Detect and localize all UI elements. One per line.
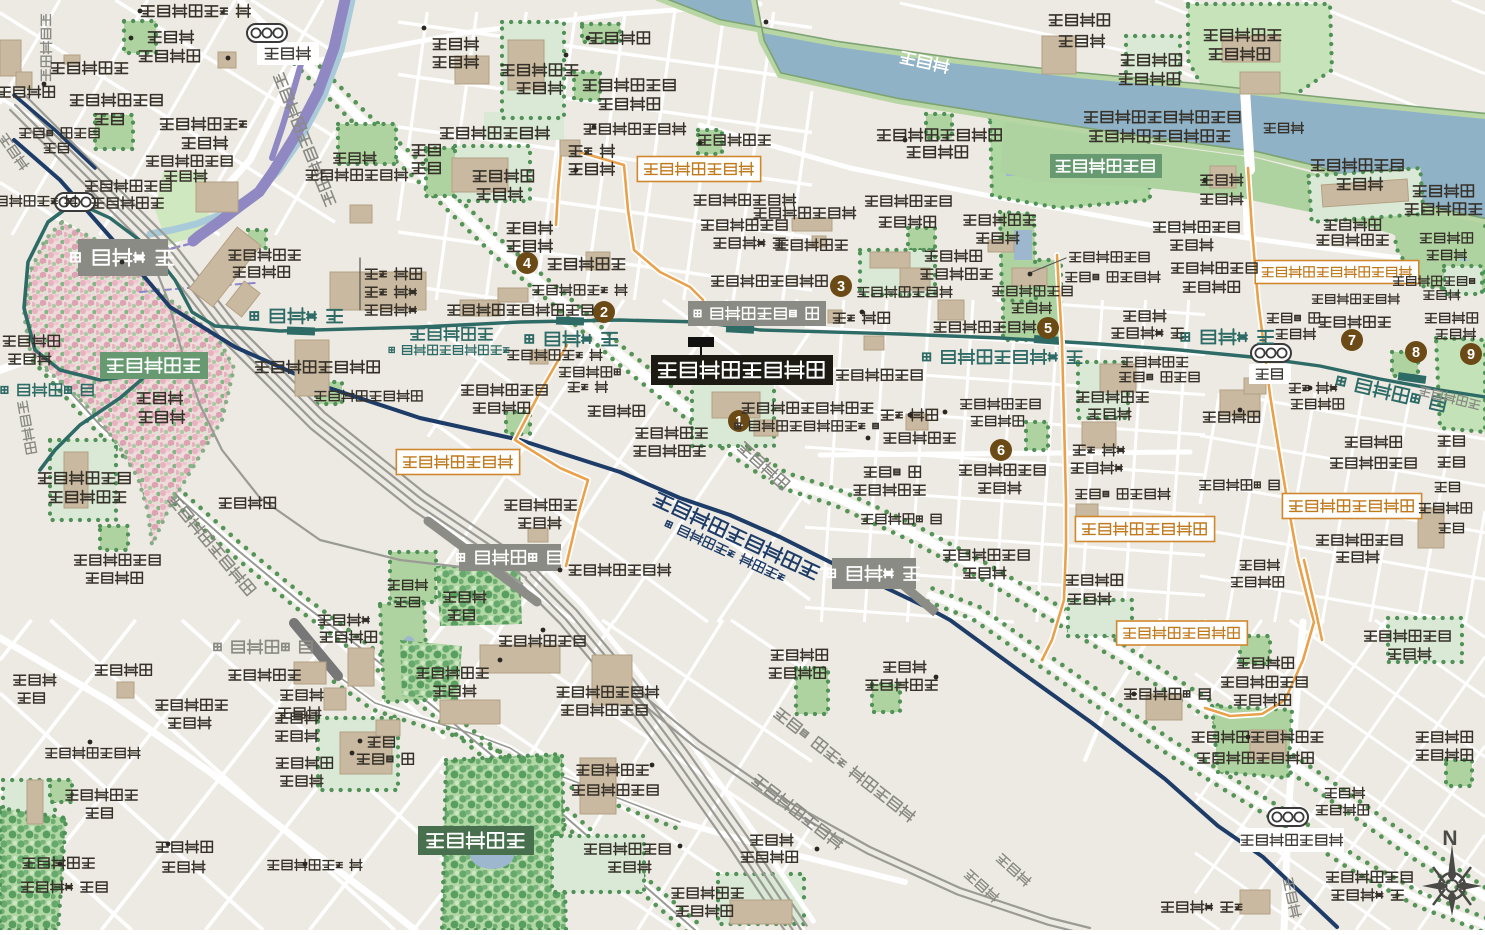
svg-text:2: 2 — [600, 305, 608, 321]
svg-text:9: 9 — [1467, 347, 1475, 363]
svg-text:N: N — [1442, 827, 1457, 850]
svg-text:8: 8 — [1412, 345, 1420, 361]
svg-text:7: 7 — [1348, 333, 1356, 349]
svg-text:3: 3 — [837, 279, 845, 295]
svg-text:6: 6 — [997, 443, 1005, 459]
svg-text:5: 5 — [1044, 321, 1052, 337]
svg-text:1: 1 — [735, 414, 743, 430]
svg-text:4: 4 — [523, 256, 531, 272]
